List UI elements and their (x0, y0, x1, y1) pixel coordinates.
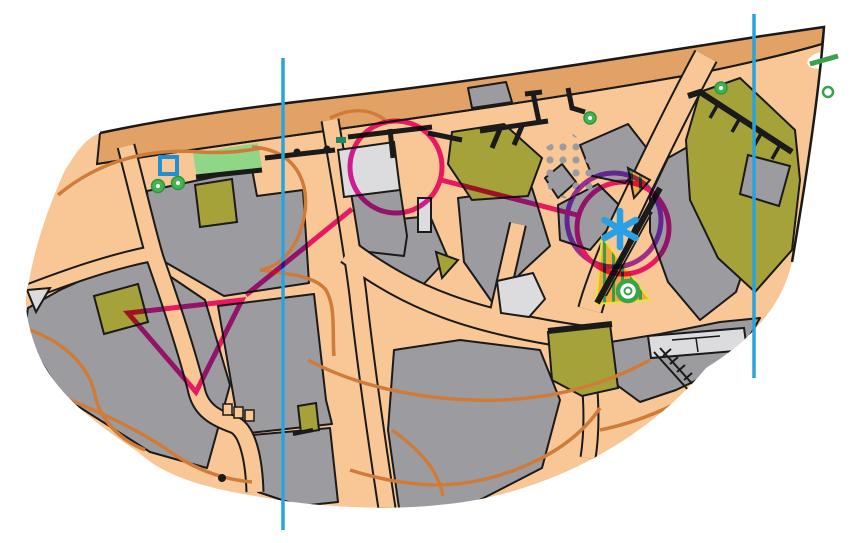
prominent-tree-center (625, 288, 632, 295)
boulder-dot (218, 474, 226, 482)
orienteering-map-canvas (0, 0, 851, 543)
tree-center-dot (176, 181, 180, 185)
terrain-layer (24, 27, 838, 515)
wall-knob (324, 146, 331, 153)
tree-center-dot (156, 184, 160, 188)
wall-knob (294, 149, 301, 156)
tree-center-dot (719, 86, 723, 90)
teal-mark (336, 137, 346, 143)
tree-center-dot (588, 116, 592, 120)
map-image (0, 0, 851, 543)
tree-ring-icon (823, 87, 833, 97)
